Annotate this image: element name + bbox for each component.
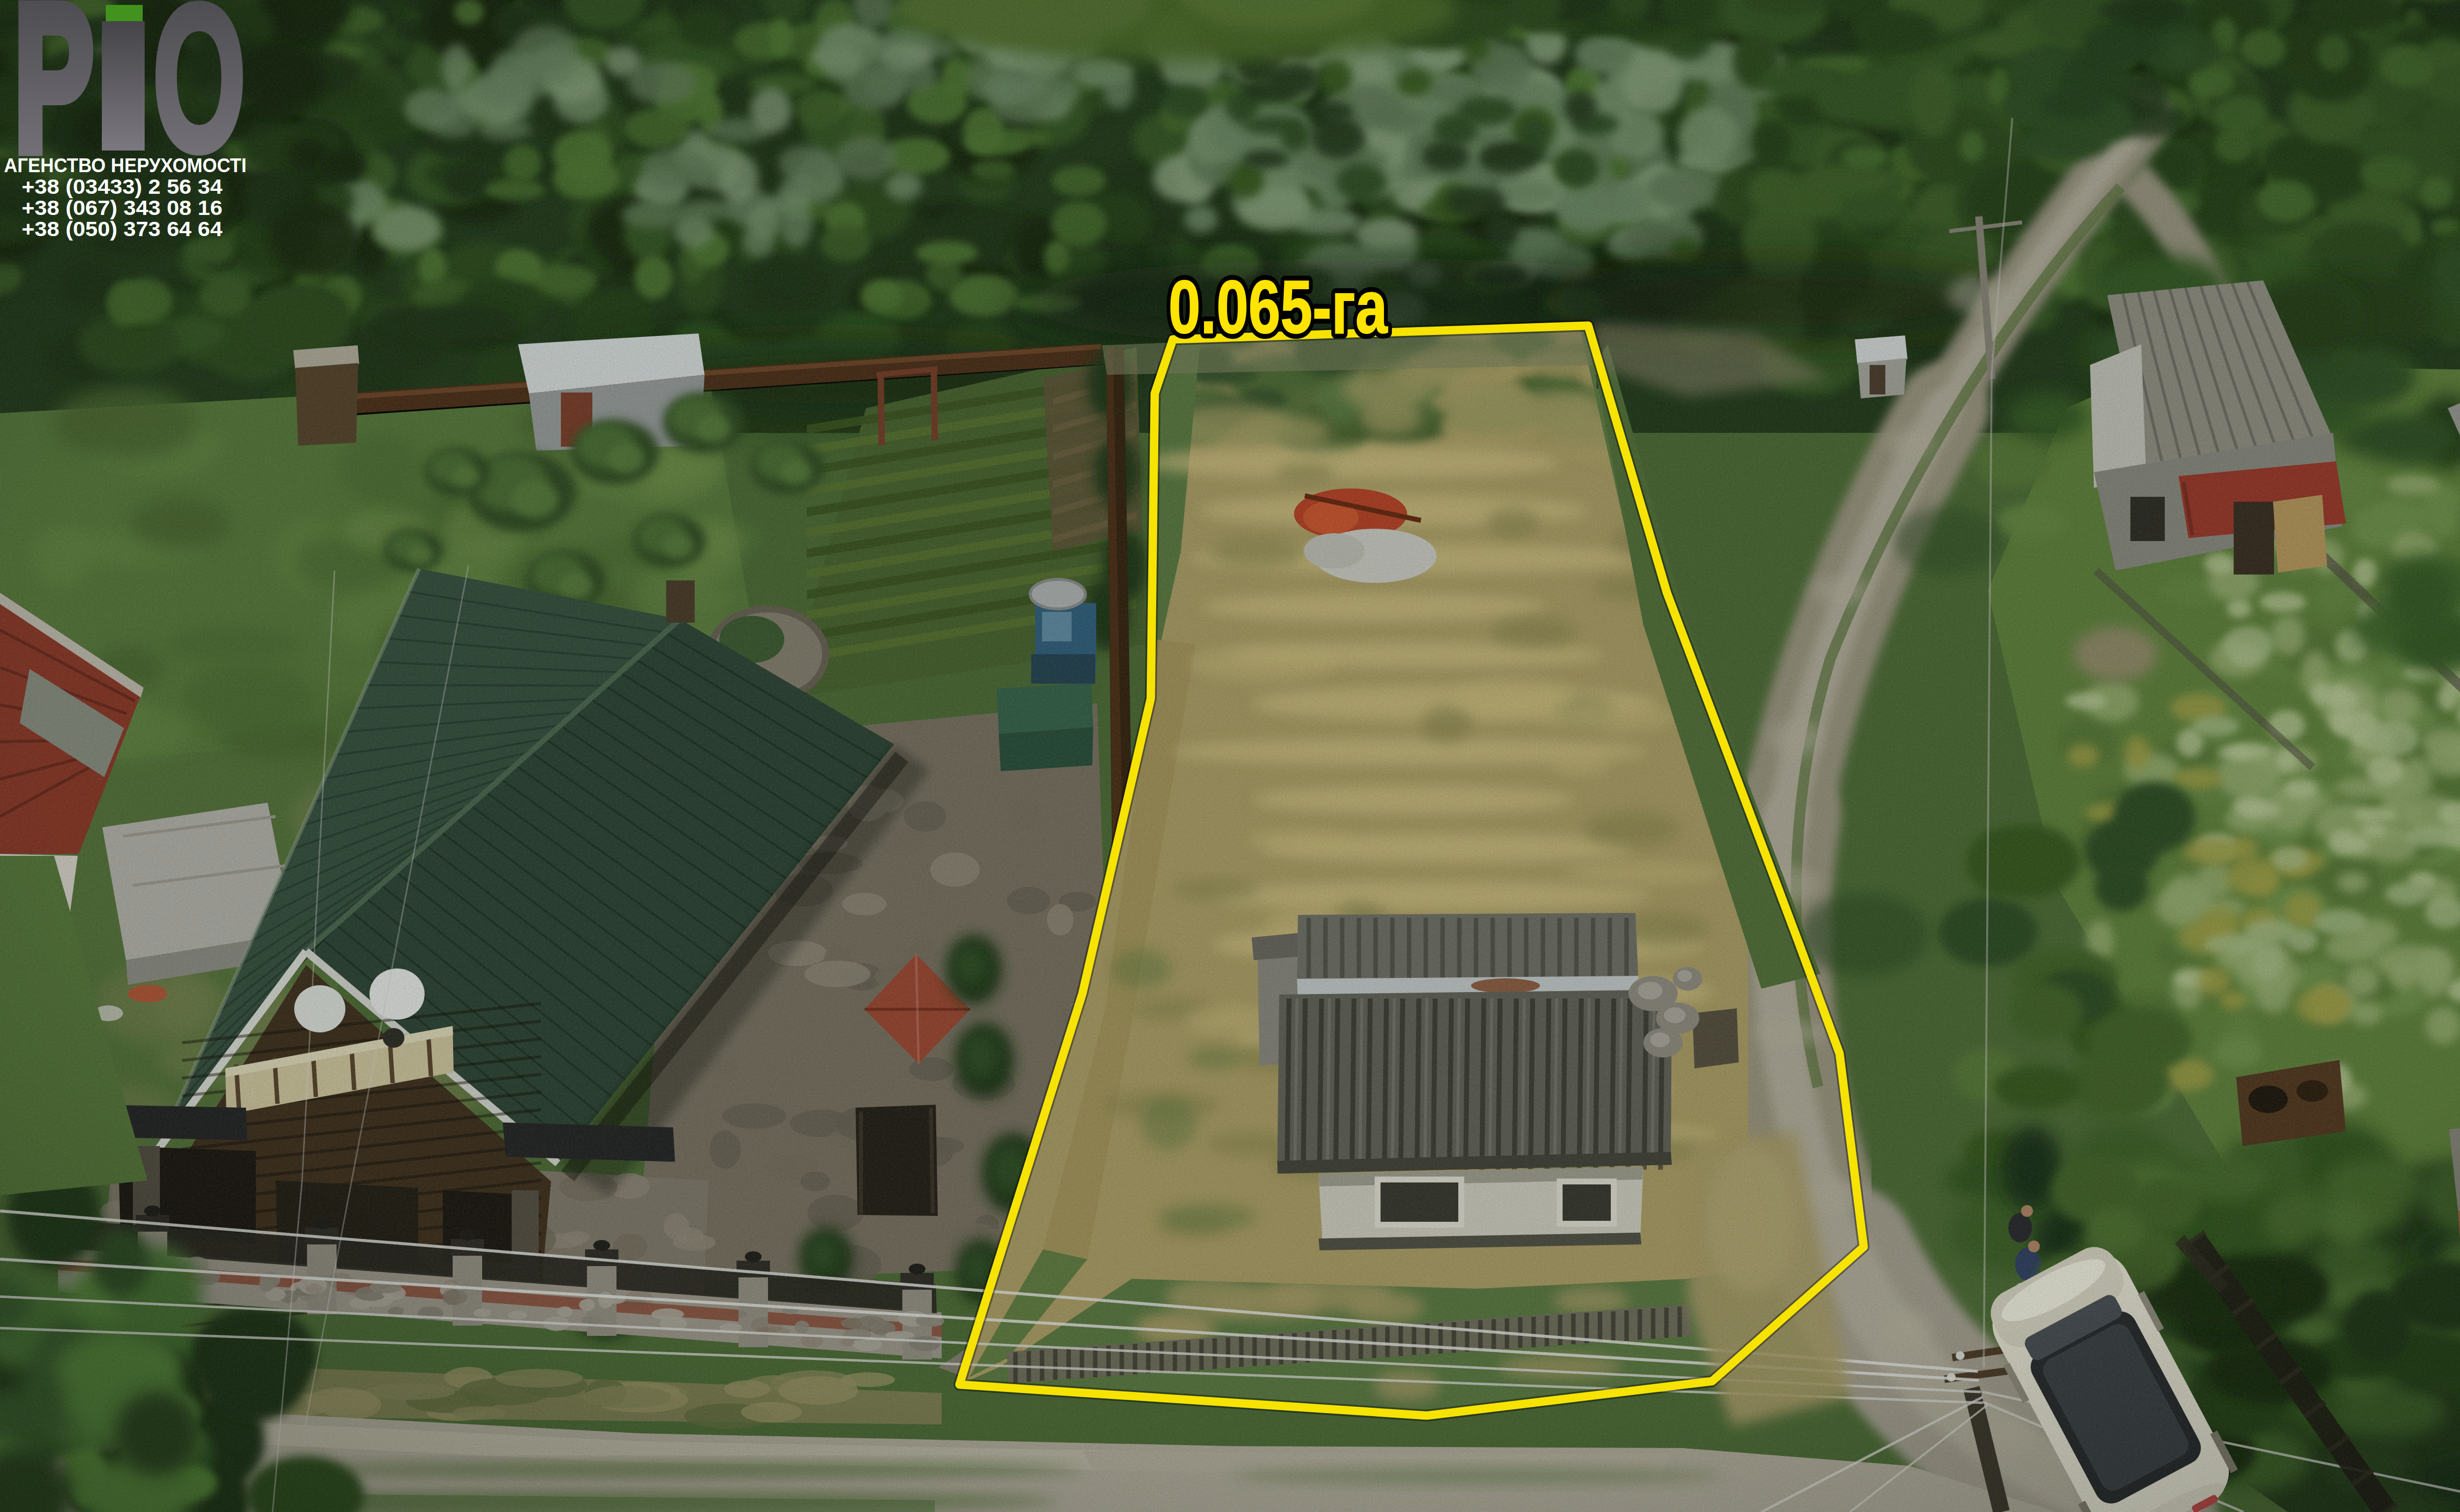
svg-text:+38 (050) 373 64 64: +38 (050) 373 64 64	[22, 217, 223, 241]
svg-text:АГЕНСТВО НЕРУХОМОСТІ: АГЕНСТВО НЕРУХОМОСТІ	[4, 154, 246, 177]
svg-text:+38 (067) 343 08 16: +38 (067) 343 08 16	[22, 196, 222, 219]
svg-text:0.065-га: 0.065-га	[1168, 265, 1388, 349]
svg-text:+38 (03433) 2 56 34: +38 (03433) 2 56 34	[22, 175, 223, 198]
